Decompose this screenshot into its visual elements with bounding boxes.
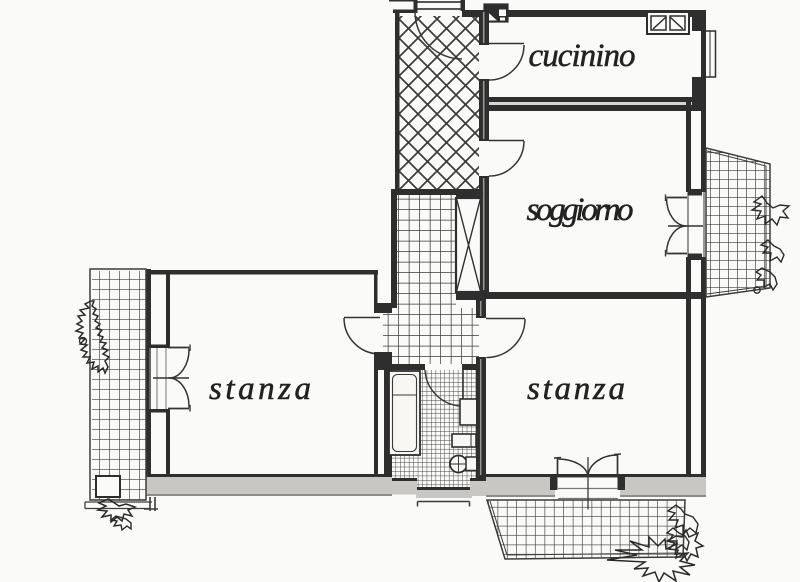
svg-text:stanza: stanza xyxy=(527,371,625,407)
svg-text:cucinino: cucinino xyxy=(529,38,636,74)
svg-text:soggiorno: soggiorno xyxy=(527,192,634,228)
